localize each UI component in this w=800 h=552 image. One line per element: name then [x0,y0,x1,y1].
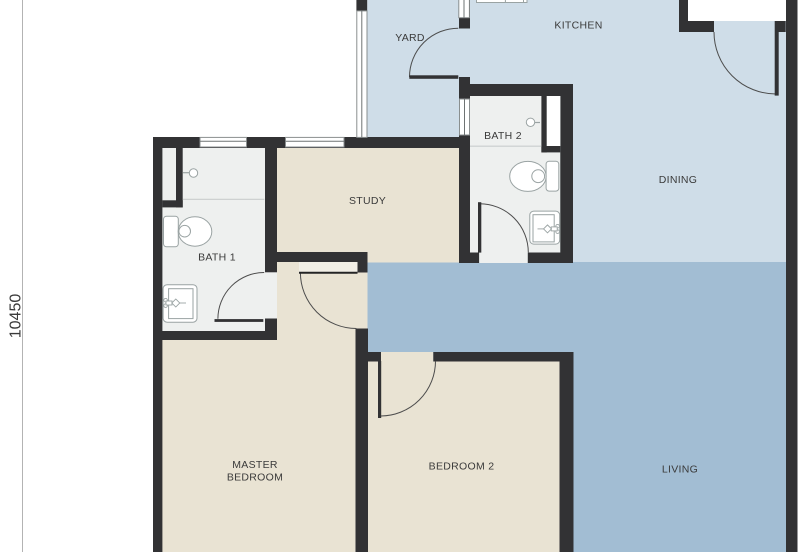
svg-text:10450: 10450 [8,294,25,339]
svg-text:LIVING: LIVING [662,464,698,476]
svg-text:BEDROOM 2: BEDROOM 2 [429,461,495,473]
svg-text:BEDROOM: BEDROOM [227,472,283,484]
svg-text:BATH 2: BATH 2 [484,130,522,142]
svg-text:YARD: YARD [395,32,425,44]
svg-text:BATH 1: BATH 1 [198,252,236,264]
svg-text:DINING: DINING [659,174,698,186]
svg-text:STUDY: STUDY [349,195,386,207]
svg-text:MASTER: MASTER [232,459,278,471]
svg-text:KITCHEN: KITCHEN [554,20,602,32]
